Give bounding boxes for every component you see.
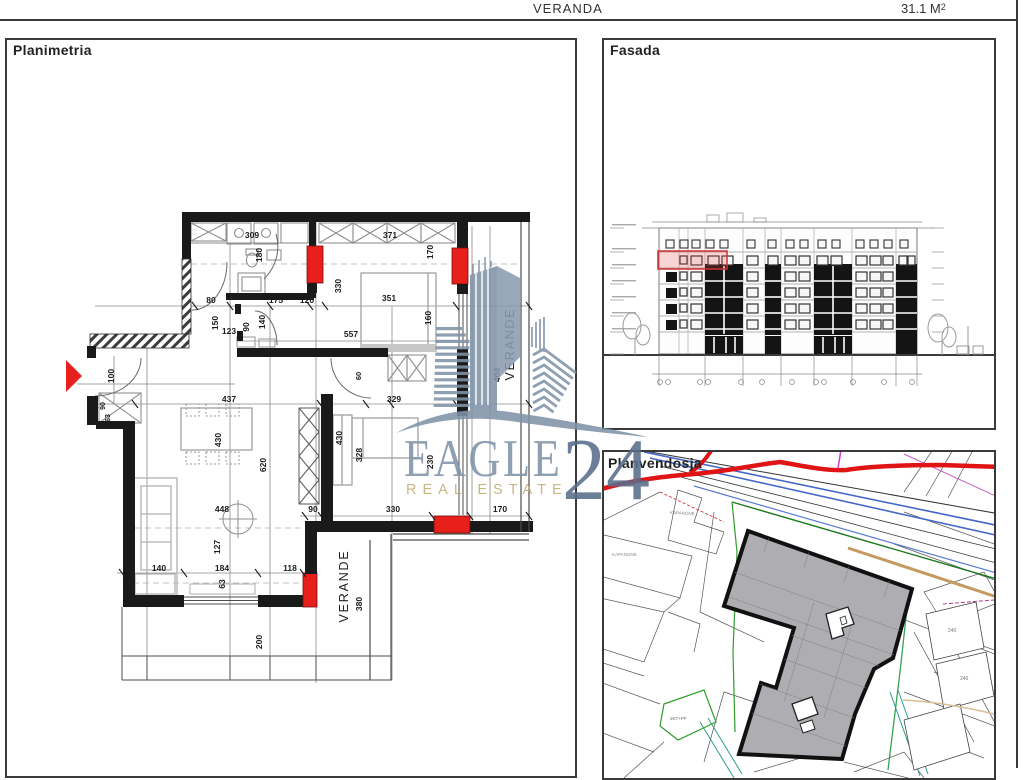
svg-text:150: 150 <box>210 316 220 330</box>
svg-text:430: 430 <box>213 433 223 447</box>
svg-text:80: 80 <box>206 295 216 305</box>
svg-text:180: 180 <box>254 248 264 262</box>
svg-text:63: 63 <box>217 579 227 589</box>
svg-text:240: 240 <box>948 628 957 634</box>
svg-text:330: 330 <box>333 279 343 293</box>
svg-text:VERANDE: VERANDE <box>337 549 351 622</box>
svg-text:90: 90 <box>100 402 107 410</box>
svg-text:90: 90 <box>241 322 251 332</box>
svg-text:620: 620 <box>258 458 268 472</box>
svg-text:REAL ESTATE: REAL ESTATE <box>406 482 568 498</box>
svg-text:KAPANONE: KAPANONE <box>670 510 695 516</box>
svg-text:170: 170 <box>493 504 507 514</box>
svg-text:448: 448 <box>215 504 229 514</box>
svg-text:328: 328 <box>354 448 364 462</box>
svg-text:2KT+PF: 2KT+PF <box>670 716 687 721</box>
svg-text:90: 90 <box>308 504 318 514</box>
svg-text:380: 380 <box>354 597 364 611</box>
svg-text:140: 140 <box>152 563 166 573</box>
svg-text:240: 240 <box>960 676 969 682</box>
svg-text:309: 309 <box>245 230 259 240</box>
svg-text:184: 184 <box>215 563 229 573</box>
svg-text:127: 127 <box>212 540 222 554</box>
svg-text:200: 200 <box>254 635 264 649</box>
svg-text:24: 24 <box>562 422 650 505</box>
svg-text:330: 330 <box>386 504 400 514</box>
svg-text:371: 371 <box>383 230 397 240</box>
svg-text:175: 175 <box>269 295 283 305</box>
svg-text:120: 120 <box>300 295 314 305</box>
svg-text:140: 140 <box>257 315 267 329</box>
svg-text:118: 118 <box>283 563 297 573</box>
svg-text:123: 123 <box>222 326 236 336</box>
svg-text:60: 60 <box>354 372 363 380</box>
svg-text:100: 100 <box>106 369 116 383</box>
svg-text:63: 63 <box>105 414 112 422</box>
svg-text:430: 430 <box>334 431 344 445</box>
svg-text:KAPANONE: KAPANONE <box>612 552 637 557</box>
svg-text:437: 437 <box>222 394 236 404</box>
svg-text:557: 557 <box>344 329 358 339</box>
svg-text:EAGLE: EAGLE <box>404 428 562 488</box>
